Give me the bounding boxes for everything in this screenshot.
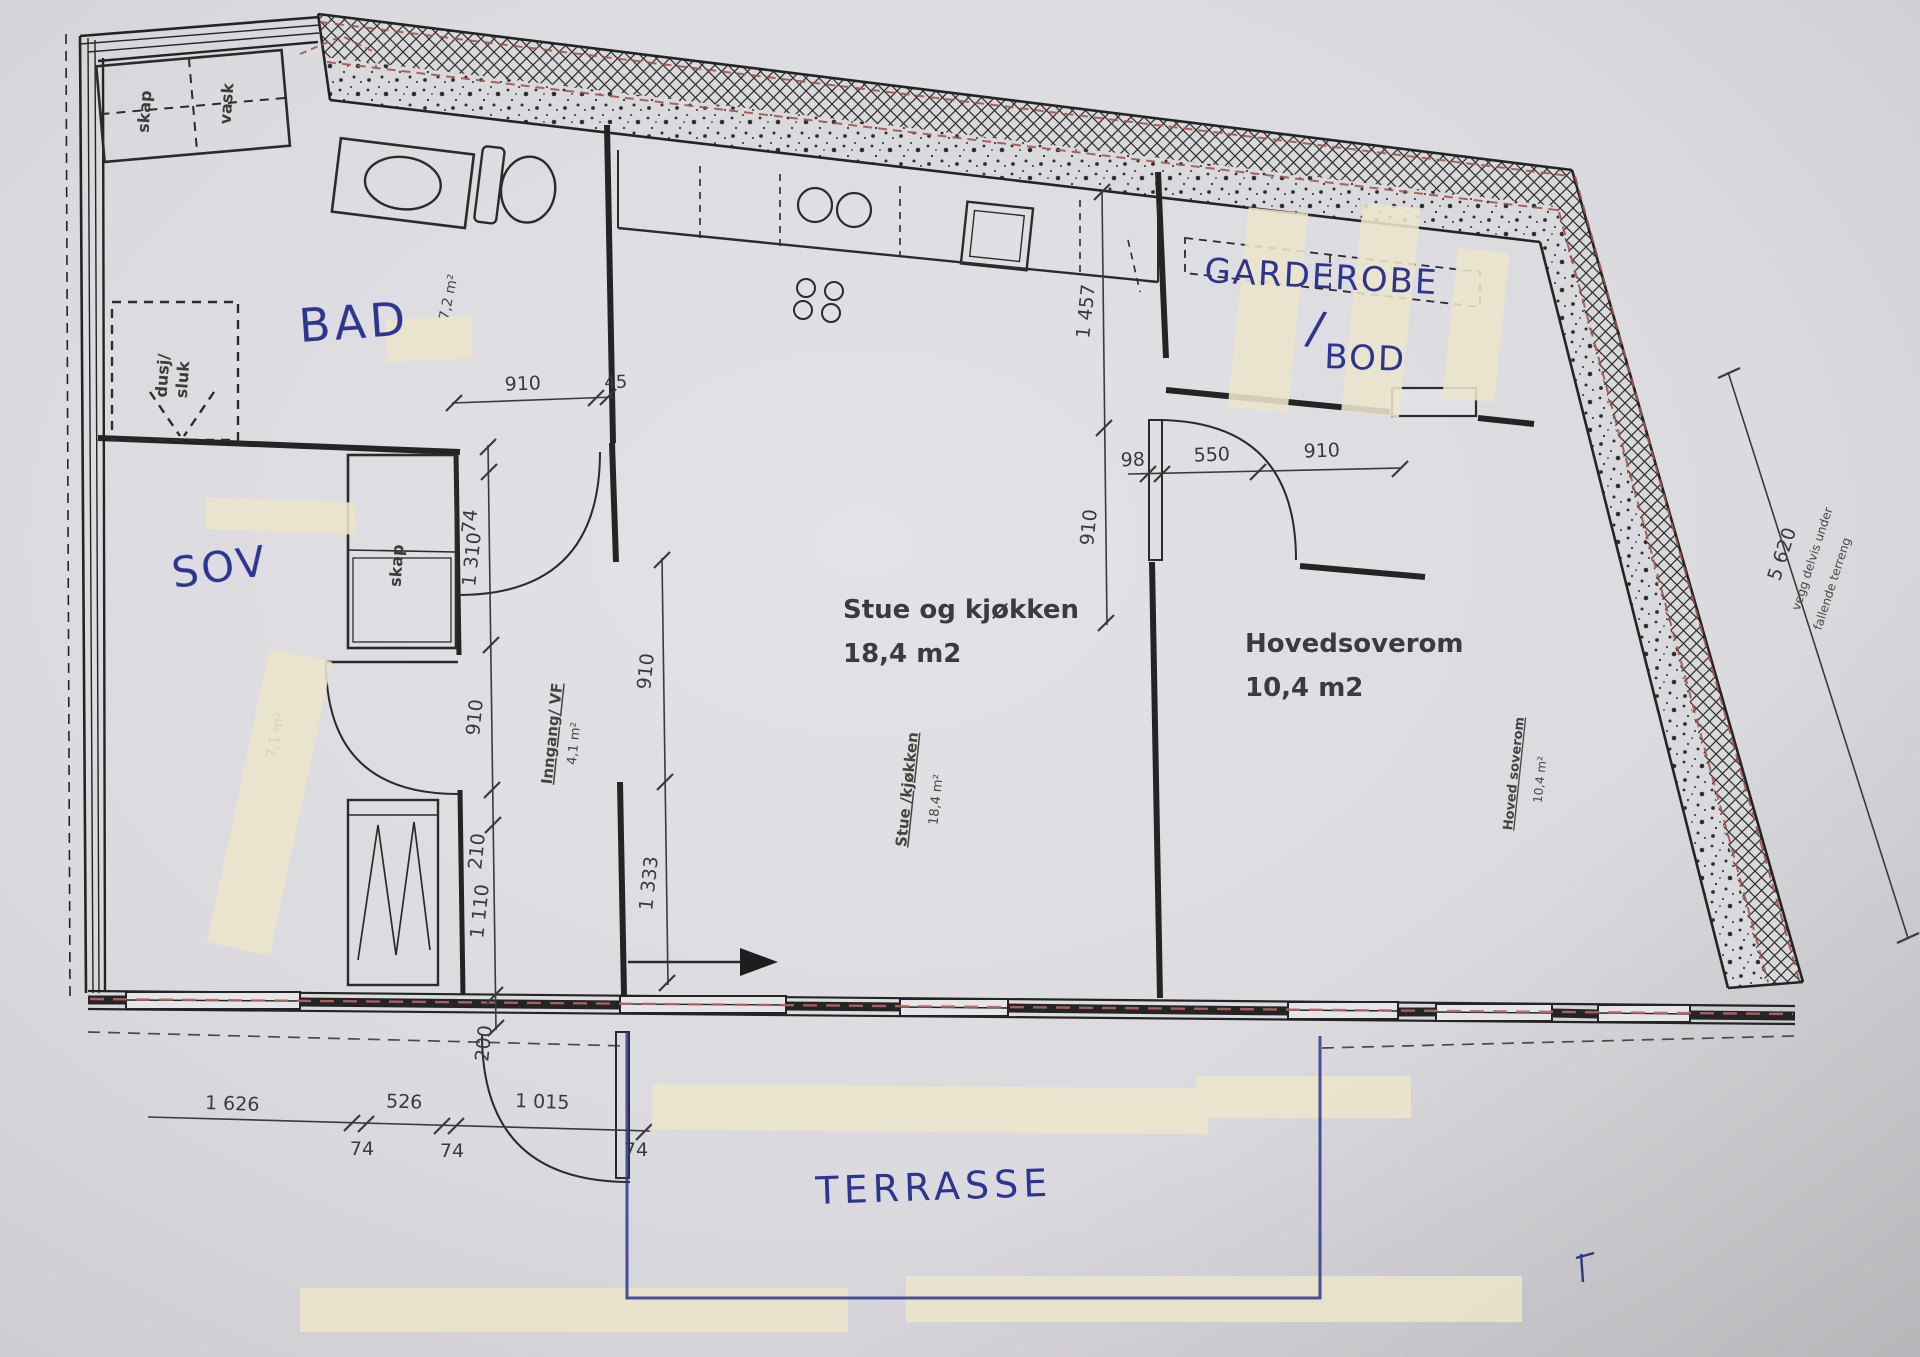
skap-label: skap bbox=[134, 90, 156, 134]
stue-room-label: Stue og kjøkken bbox=[843, 595, 1079, 625]
dusj-label-1: dusj/ bbox=[152, 353, 174, 398]
handwritten-bod: BOD bbox=[1324, 337, 1407, 380]
hovedsoverom-room-label: Hovedsoverom bbox=[1245, 629, 1464, 659]
floor-plan-photo: 910 45 74 1 310 910 210 1 110 200 910 1 … bbox=[0, 0, 1920, 1357]
dim-bedroom-910: 910 bbox=[1303, 439, 1340, 462]
dim-bad-door: 910 bbox=[504, 372, 541, 395]
hovedsoverom-area-label: 10,4 m2 bbox=[1245, 673, 1363, 703]
stue-area-label: 18,4 m2 bbox=[843, 639, 961, 669]
dusj-label-2: sluk bbox=[172, 360, 194, 399]
dim-frame-74-b: 74 bbox=[440, 1140, 464, 1162]
dim-left-910: 910 bbox=[462, 698, 488, 736]
dim-frame-74-a: 74 bbox=[350, 1138, 374, 1160]
dim-left-200: 200 bbox=[471, 1024, 497, 1062]
dim-bad-frame: 45 bbox=[604, 372, 628, 394]
sov-skap-label: skap bbox=[386, 544, 408, 588]
dim-bottom-1626: 1 626 bbox=[205, 1092, 260, 1116]
dim-bottom-1015: 1 015 bbox=[515, 1090, 570, 1114]
dim-kitchen-910: 910 bbox=[1076, 508, 1102, 546]
handwritten-bad: BAD bbox=[297, 291, 411, 353]
dim-mid-910: 910 bbox=[633, 652, 659, 690]
dim-bottom-526: 526 bbox=[386, 1090, 423, 1113]
dim-bedroom-98: 98 bbox=[1120, 449, 1145, 472]
dim-bedroom-550: 550 bbox=[1193, 443, 1230, 466]
handwritten-terrasse: TERRASSE bbox=[814, 1161, 1053, 1213]
dim-left-210: 210 bbox=[464, 832, 490, 870]
dim-left-74: 74 bbox=[458, 508, 482, 534]
floor-plan-drawing: 910 45 74 1 310 910 210 1 110 200 910 1 … bbox=[0, 0, 1920, 1357]
vask-label: vask bbox=[216, 82, 238, 125]
